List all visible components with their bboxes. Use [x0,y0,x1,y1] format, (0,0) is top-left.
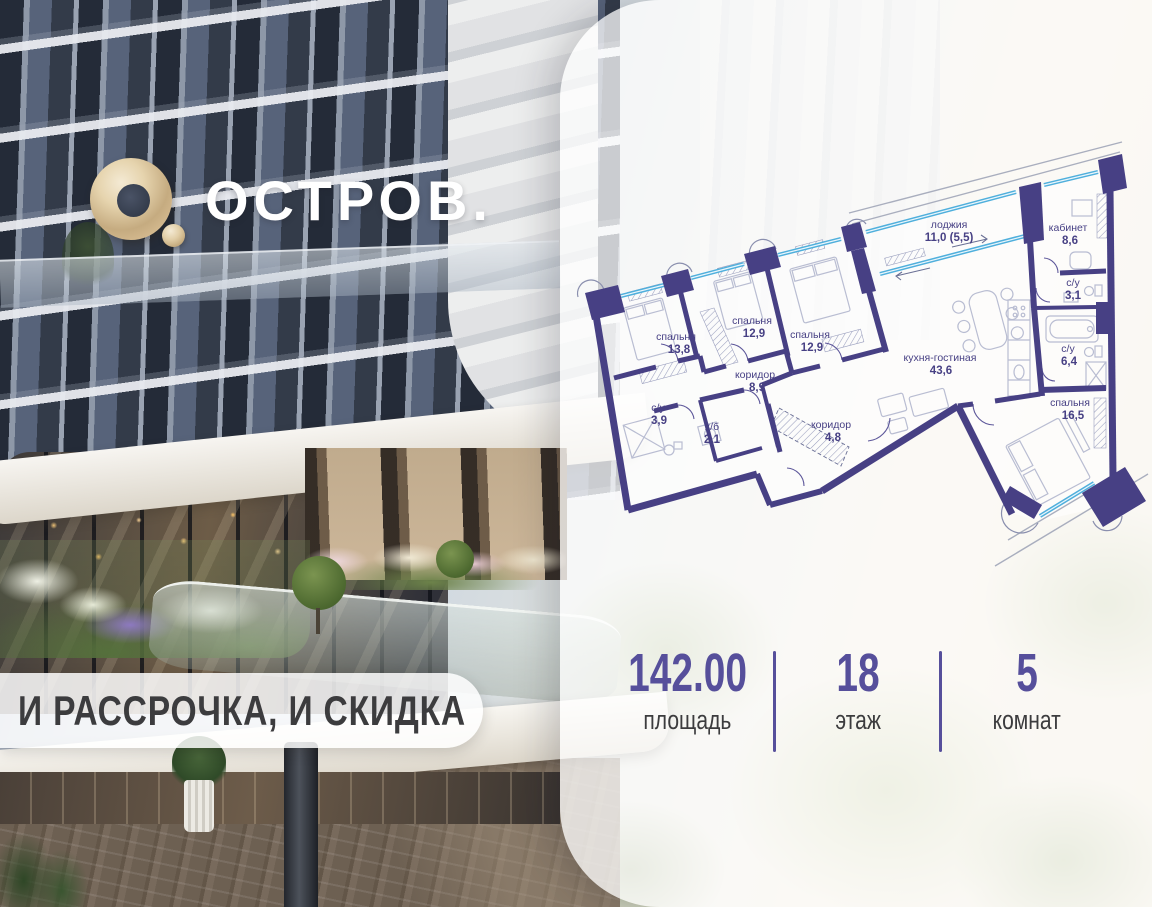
pillar [284,742,318,907]
stat-rooms-label: комнат [993,705,1061,736]
logo-dot-icon [162,224,185,247]
promo-card: спальня 13,8 спальня 12,9 спальня 12,9 к… [0,0,1152,907]
logo-text: ОСТРОВ. [205,168,493,233]
topiary-trunk [316,608,320,634]
stat-area: 142.00 площадь [600,645,775,736]
logo-donut-hole [117,184,150,217]
stat-rooms-value: 5 [1016,645,1038,701]
stat-floor: 18 этаж [775,645,941,736]
stat-floor-value: 18 [836,645,879,701]
topiary-tree [292,556,346,610]
spruce-plants [0,800,95,907]
promo-badge-text: И РАССРОЧКА, И СКИДКА [18,687,466,735]
stat-area-value: 142.00 [628,645,747,701]
stat-rooms: 5 комнат [941,645,1113,736]
logo-donut-icon [90,158,172,240]
stat-area-label: площадь [644,705,732,736]
topiary-tree-small [436,540,474,578]
frosted-panel [560,0,1152,907]
promo-badge: И РАССРОЧКА, И СКИДКА [0,673,483,748]
stat-floor-label: этаж [835,705,880,736]
planter-pot [184,780,214,832]
